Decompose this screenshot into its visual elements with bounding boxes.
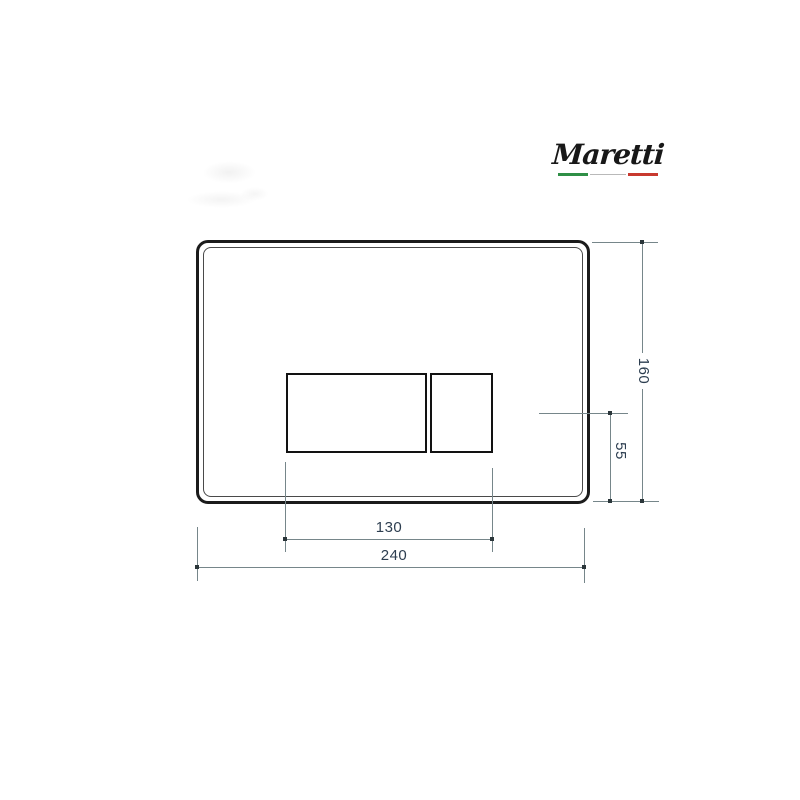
dimension-line-buttons-width [285,539,493,540]
extension-line-plate-top [592,242,658,243]
dim-tick [608,411,612,415]
dim-tick [640,240,644,244]
small-flush-button [430,373,493,453]
dim-label-buttons-width: 130 [364,520,414,536]
dim-label-plate-height: 160 [635,353,651,389]
flag-center-fineprint [590,174,626,175]
large-flush-button [286,373,427,453]
flag-green-segment [558,173,588,176]
extension-line-plate-right [584,528,585,583]
dimension-line-plate-width [197,567,585,568]
extension-line-plate-bottom [593,501,659,502]
faint-watermark-top-left [172,142,282,222]
dim-tick [195,565,199,569]
brand-name: Maretti [547,138,669,172]
italy-flag-underline [548,173,668,176]
flag-red-segment [628,173,658,176]
drawing-canvas: Maretti 160 55 130 240 [0,0,800,800]
dim-label-plate-width: 240 [366,548,422,564]
dimension-line-button-to-bottom [610,413,611,502]
dim-label-button-to-bottom: 55 [612,436,628,466]
dim-tick [640,499,644,503]
dim-tick [582,565,586,569]
flush-plate-inner-edge [203,247,583,497]
dim-tick [283,537,287,541]
dim-tick [490,537,494,541]
dim-tick [608,499,612,503]
extension-line-plate-left [197,527,198,581]
extension-line-button-center [539,413,628,414]
brand-logo: Maretti [548,138,668,176]
